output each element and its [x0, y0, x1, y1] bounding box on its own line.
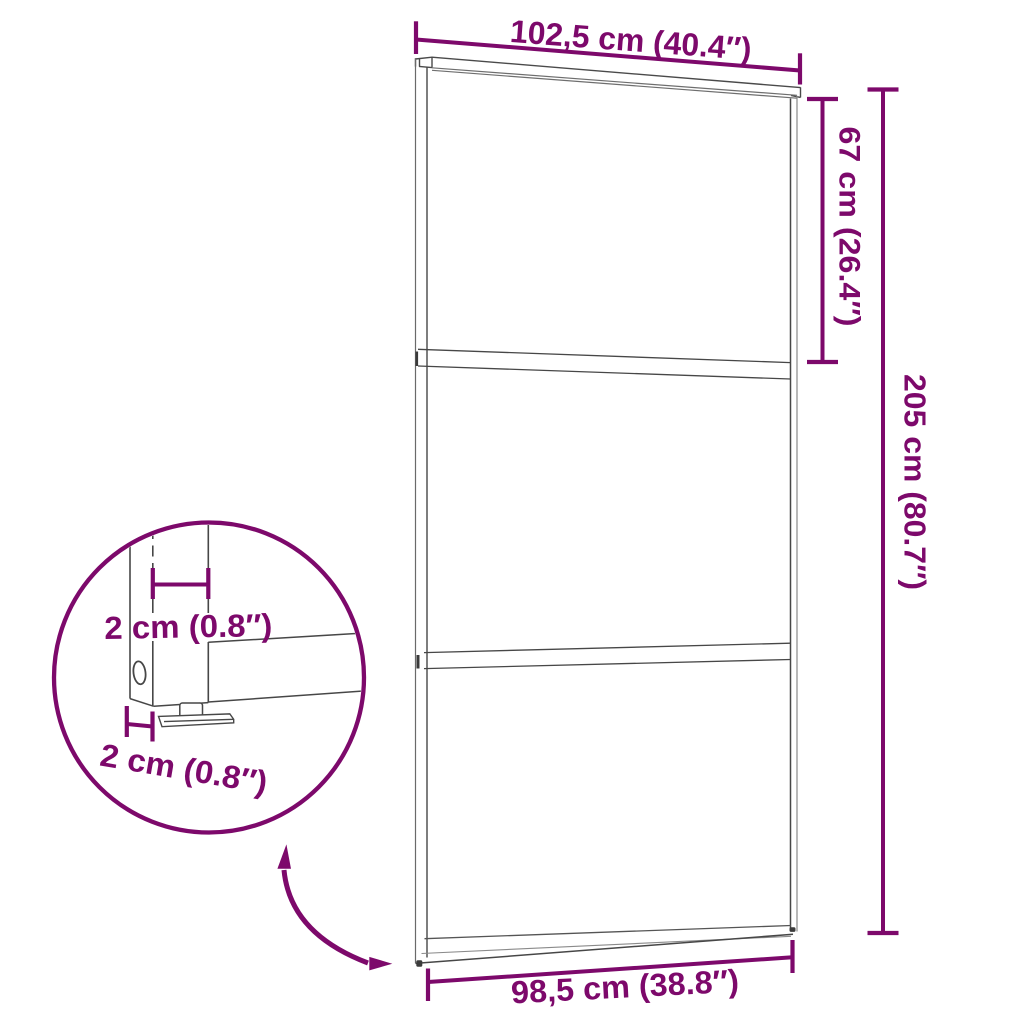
svg-text:2 cm (0.8″): 2 cm (0.8″): [104, 607, 273, 646]
svg-text:67 cm (26.4″): 67 cm (26.4″): [833, 127, 866, 327]
svg-text:98,5 cm (38.8″): 98,5 cm (38.8″): [510, 963, 740, 1011]
svg-text:205 cm (80.7″): 205 cm (80.7″): [898, 374, 932, 590]
svg-text:102,5 cm (40.4″): 102,5 cm (40.4″): [509, 13, 753, 67]
